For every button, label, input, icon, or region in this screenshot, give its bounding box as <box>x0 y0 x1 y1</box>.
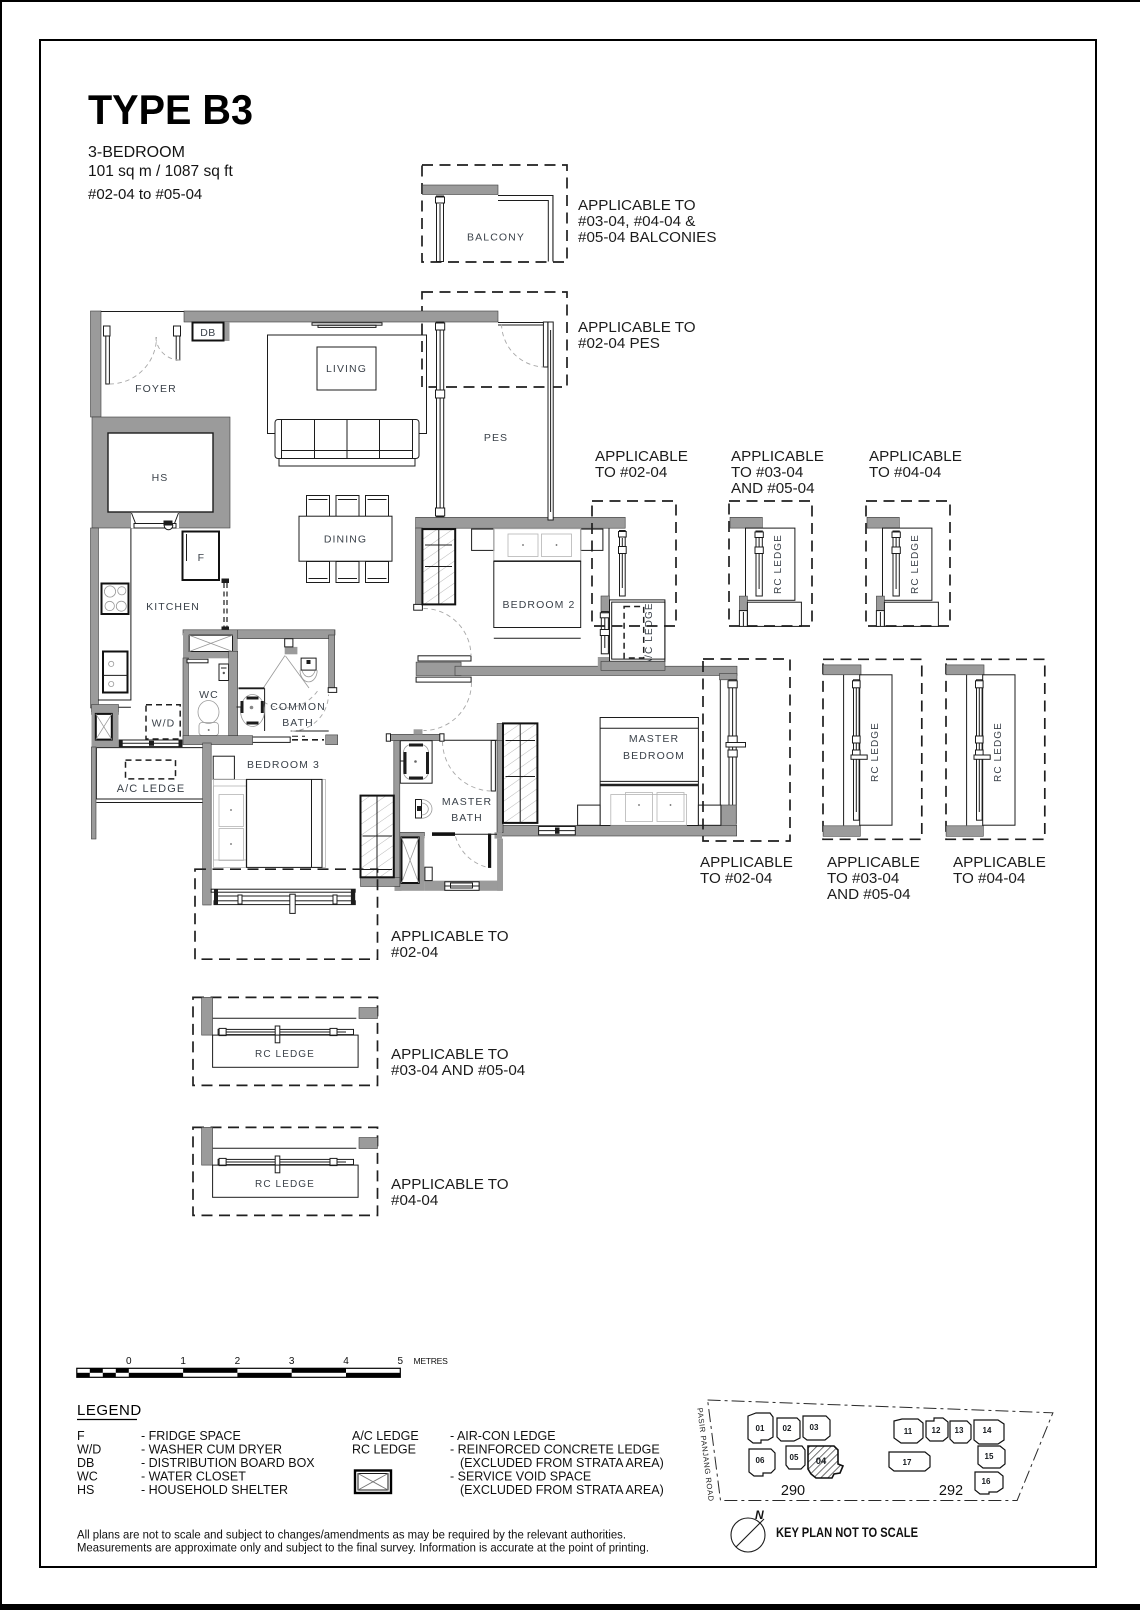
svg-text:11: 11 <box>904 1427 913 1436</box>
svg-text:RC LEDGE: RC LEDGE <box>255 1049 315 1060</box>
svg-text:3-BEDROOM: 3-BEDROOM <box>88 144 185 161</box>
svg-text:BATH: BATH <box>451 812 483 824</box>
svg-text:APPLICABLE TO: APPLICABLE TO <box>391 1176 509 1193</box>
svg-text:W/D: W/D <box>152 718 176 730</box>
svg-text:#02-04: #02-04 <box>391 944 438 961</box>
svg-text:16: 16 <box>982 1477 991 1486</box>
svg-text:BEDROOM: BEDROOM <box>623 750 685 762</box>
svg-text:1: 1 <box>180 1356 186 1367</box>
svg-text:- AIR-CON LEDGE: - AIR-CON LEDGE <box>450 1429 556 1443</box>
svg-text:PES: PES <box>484 432 508 444</box>
svg-text:#02-04 PES: #02-04 PES <box>578 335 660 352</box>
svg-text:A/C LEDGE: A/C LEDGE <box>117 783 186 795</box>
svg-text:5: 5 <box>398 1356 404 1367</box>
svg-text:- HOUSEHOLD SHELTER: - HOUSEHOLD SHELTER <box>141 1483 288 1497</box>
svg-text:HS: HS <box>77 1483 94 1497</box>
svg-text:03: 03 <box>810 1423 819 1432</box>
svg-text:RC LEDGE: RC LEDGE <box>255 1179 315 1190</box>
svg-text:02: 02 <box>783 1424 792 1433</box>
svg-text:MASTER: MASTER <box>629 733 679 745</box>
svg-text:#02-04 to #05-04: #02-04 to #05-04 <box>88 186 202 203</box>
svg-text:APPLICABLE TO: APPLICABLE TO <box>578 197 696 214</box>
svg-text:- WATER CLOSET: - WATER CLOSET <box>141 1470 246 1484</box>
svg-text:F: F <box>77 1429 85 1443</box>
svg-text:F: F <box>198 552 205 564</box>
svg-text:RC LEDGE: RC LEDGE <box>993 722 1004 782</box>
svg-text:APPLICABLE TO: APPLICABLE TO <box>391 928 509 945</box>
svg-text:AND #05-04: AND #05-04 <box>731 480 815 497</box>
svg-text:TO #04-04: TO #04-04 <box>953 870 1025 887</box>
svg-text:290: 290 <box>781 1483 805 1499</box>
svg-text:- REINFORCED CONCRETE LEDGE: - REINFORCED CONCRETE LEDGE <box>450 1443 660 1457</box>
svg-text:TO #03-04: TO #03-04 <box>731 464 803 481</box>
svg-text:AND #05-04: AND #05-04 <box>827 886 911 903</box>
svg-text:LIVING: LIVING <box>326 363 367 375</box>
svg-text:All plans are not to scale and: All plans are not to scale and subject t… <box>77 1528 626 1542</box>
svg-text:TO #03-04: TO #03-04 <box>827 870 899 887</box>
svg-text:DB: DB <box>77 1456 94 1470</box>
svg-text:KEY PLAN NOT TO SCALE: KEY PLAN NOT TO SCALE <box>776 1524 918 1540</box>
svg-text:W/D: W/D <box>77 1443 101 1457</box>
svg-text:TO #02-04: TO #02-04 <box>700 870 772 887</box>
svg-text:KITCHEN: KITCHEN <box>146 601 200 613</box>
svg-text:2: 2 <box>235 1356 241 1367</box>
svg-text:BALCONY: BALCONY <box>467 232 525 244</box>
svg-text:TYPE B3: TYPE B3 <box>88 86 253 133</box>
svg-text:A/C LEDGE: A/C LEDGE <box>644 602 655 665</box>
svg-text:- WASHER CUM DRYER: - WASHER CUM DRYER <box>141 1443 282 1457</box>
svg-text:APPLICABLE: APPLICABLE <box>953 854 1046 871</box>
svg-text:METRES: METRES <box>414 1356 449 1366</box>
svg-text:14: 14 <box>983 1426 992 1435</box>
svg-text:DB: DB <box>200 327 215 339</box>
svg-text:APPLICABLE: APPLICABLE <box>827 854 920 871</box>
svg-text:15: 15 <box>985 1452 994 1461</box>
svg-text:HS: HS <box>152 472 169 484</box>
svg-text:05: 05 <box>790 1453 799 1462</box>
svg-text:- FRIDGE SPACE: - FRIDGE SPACE <box>141 1429 241 1443</box>
svg-text:A/C LEDGE: A/C LEDGE <box>352 1429 419 1443</box>
svg-text:292: 292 <box>939 1483 963 1499</box>
svg-text:APPLICABLE: APPLICABLE <box>731 448 824 465</box>
svg-text:4: 4 <box>343 1356 349 1367</box>
svg-text:BEDROOM 3: BEDROOM 3 <box>247 759 320 771</box>
svg-text:(EXCLUDED FROM STRATA AREA): (EXCLUDED FROM STRATA AREA) <box>460 1483 664 1497</box>
svg-text:MASTER: MASTER <box>442 796 492 808</box>
svg-text:#03-04, #04-04 &: #03-04, #04-04 & <box>578 213 695 230</box>
svg-text:APPLICABLE: APPLICABLE <box>700 854 793 871</box>
svg-text:17: 17 <box>903 1458 912 1467</box>
svg-text:TO #02-04: TO #02-04 <box>595 464 667 481</box>
svg-text:APPLICABLE TO: APPLICABLE TO <box>578 319 696 336</box>
svg-text:TO #04-04: TO #04-04 <box>869 464 941 481</box>
svg-text:APPLICABLE: APPLICABLE <box>595 448 688 465</box>
svg-text:RC LEDGE: RC LEDGE <box>352 1443 416 1457</box>
svg-text:RC LEDGE: RC LEDGE <box>910 534 921 594</box>
svg-text:DINING: DINING <box>324 534 367 546</box>
svg-text:01: 01 <box>756 1424 765 1433</box>
svg-text:- DISTRIBUTION BOARD BOX: - DISTRIBUTION BOARD BOX <box>141 1456 315 1470</box>
svg-text:APPLICABLE: APPLICABLE <box>869 448 962 465</box>
svg-text:04: 04 <box>816 1456 827 1467</box>
svg-text:WC: WC <box>77 1470 98 1484</box>
svg-text:RC LEDGE: RC LEDGE <box>773 534 784 594</box>
svg-text:0: 0 <box>126 1356 132 1367</box>
svg-text:COMMON: COMMON <box>270 701 326 713</box>
svg-text:RC LEDGE: RC LEDGE <box>870 722 881 782</box>
svg-text:BATH: BATH <box>282 717 314 729</box>
svg-text:LEGEND: LEGEND <box>77 1402 142 1419</box>
svg-text:BEDROOM 2: BEDROOM 2 <box>503 599 576 611</box>
svg-text:06: 06 <box>756 1456 765 1465</box>
svg-text:#05-04 BALCONIES: #05-04 BALCONIES <box>578 229 716 246</box>
svg-text:#03-04 AND #05-04: #03-04 AND #05-04 <box>391 1062 525 1079</box>
svg-text:(EXCLUDED FROM STRATA AREA): (EXCLUDED FROM STRATA AREA) <box>460 1456 664 1470</box>
svg-text:13: 13 <box>955 1426 964 1435</box>
svg-text:WC: WC <box>199 689 219 701</box>
svg-text:3: 3 <box>289 1356 295 1367</box>
svg-text:- SERVICE VOID SPACE: - SERVICE VOID SPACE <box>450 1470 591 1484</box>
svg-text:Measurements are approximate o: Measurements are approximate only and su… <box>77 1541 649 1555</box>
svg-text:FOYER: FOYER <box>135 383 177 395</box>
svg-text:101 sq m / 1087 sq ft: 101 sq m / 1087 sq ft <box>88 163 233 180</box>
svg-text:#04-04: #04-04 <box>391 1192 438 1209</box>
svg-text:N: N <box>755 1508 764 1522</box>
svg-text:APPLICABLE TO: APPLICABLE TO <box>391 1046 509 1063</box>
svg-text:12: 12 <box>932 1426 941 1435</box>
